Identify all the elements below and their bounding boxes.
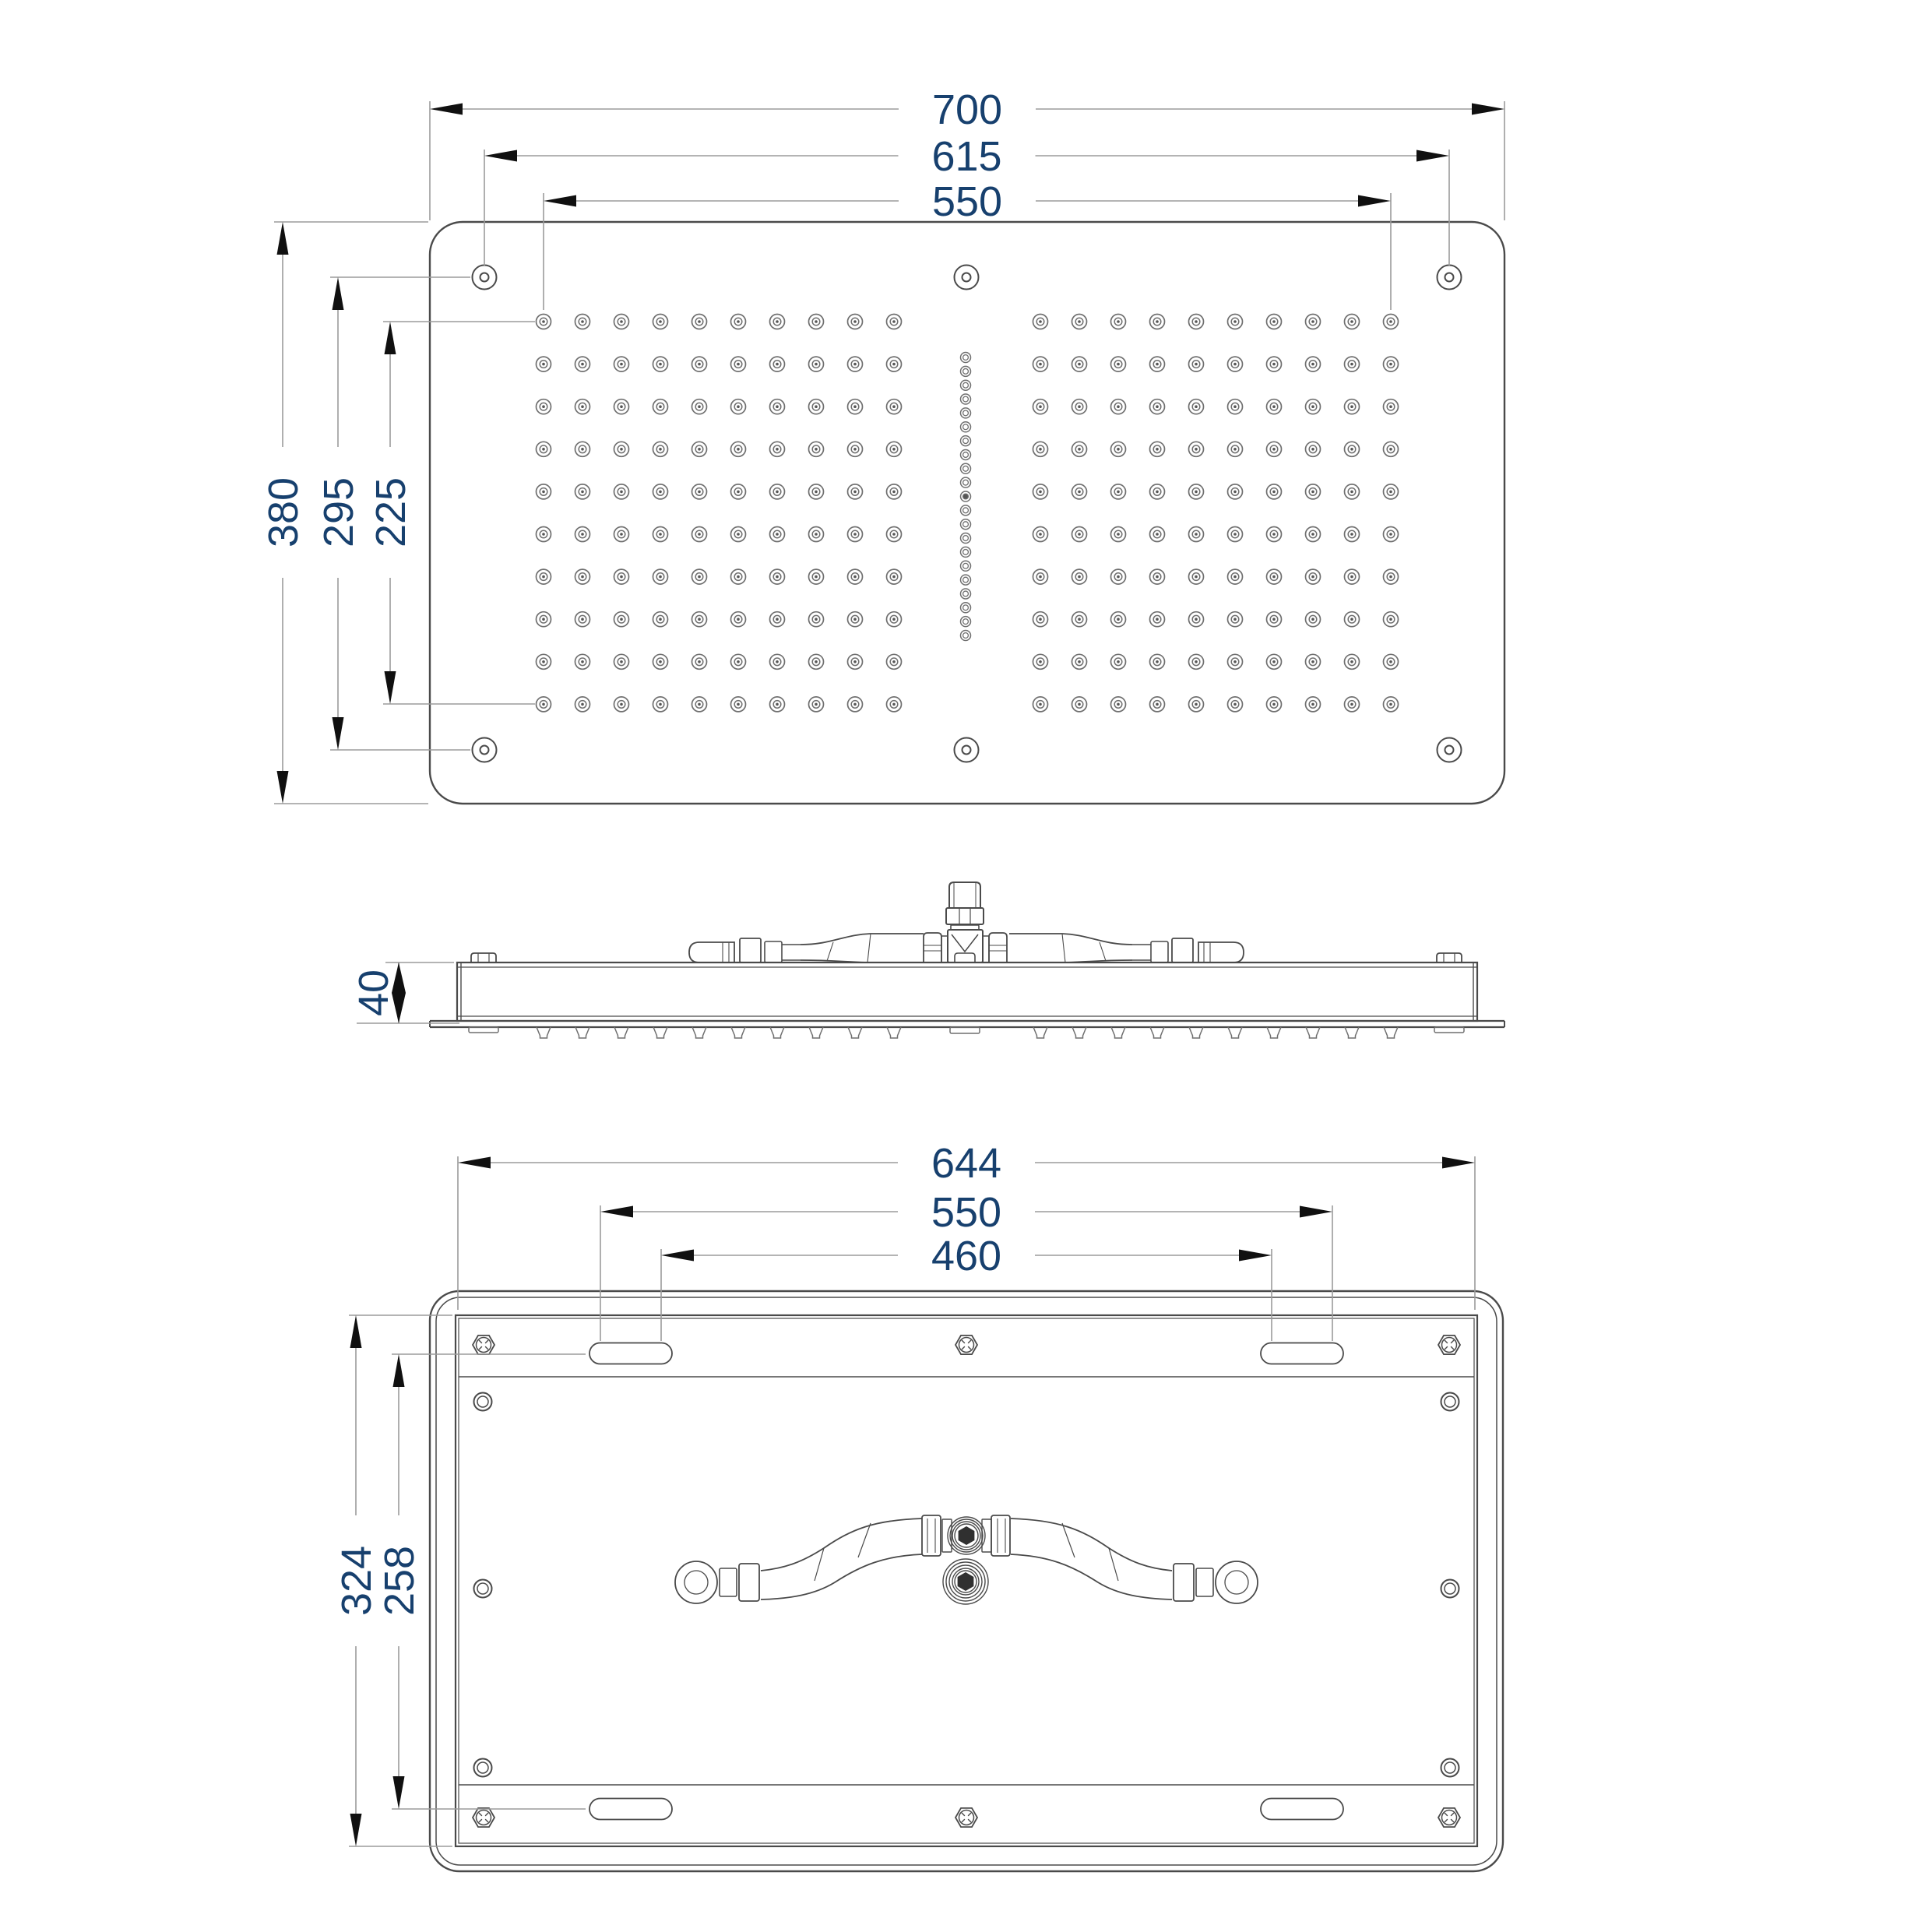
nozzle-dot xyxy=(698,363,701,366)
screw-recess xyxy=(485,1819,488,1822)
hose-nut xyxy=(739,1564,759,1601)
nozzle-jet xyxy=(653,484,668,499)
nozzle-jet xyxy=(1228,654,1243,669)
nozzle-tick xyxy=(1384,1027,1398,1038)
nozzle-dot xyxy=(1350,703,1353,706)
center-mist-nozzle xyxy=(961,617,971,627)
nozzle-jet xyxy=(692,697,707,712)
nozzle-jet xyxy=(1033,484,1048,499)
nozzle-dot xyxy=(659,618,662,621)
path xyxy=(1437,953,1462,962)
circle xyxy=(963,577,969,582)
nozzle-dot xyxy=(581,660,584,663)
nozzle-dot xyxy=(1389,320,1392,323)
nozzle-dot xyxy=(1078,575,1081,579)
nozzle-dot xyxy=(1117,491,1120,494)
mounting-bolt xyxy=(471,953,496,962)
nozzle-dot xyxy=(892,575,896,579)
nozzle-dot xyxy=(1117,703,1120,706)
nozzle-dot xyxy=(1311,491,1314,494)
nozzle-dot xyxy=(581,533,584,536)
screw-recess xyxy=(1451,1340,1454,1343)
nozzle-jet xyxy=(1189,357,1204,371)
nozzle-dot xyxy=(1272,448,1276,451)
nozzle-dot xyxy=(815,575,818,579)
nozzle-dot xyxy=(1389,660,1392,663)
circle xyxy=(963,466,969,471)
nozzle-dot xyxy=(1311,660,1314,663)
nozzle-jet xyxy=(731,697,746,712)
nozzle-dot xyxy=(892,533,896,536)
nozzle-jet xyxy=(887,399,902,414)
screw-recess xyxy=(968,1819,971,1822)
nozzle-dot xyxy=(1039,320,1042,323)
nozzle-jet xyxy=(575,484,590,499)
nozzle-tick xyxy=(1306,1027,1320,1038)
nozzle-jet xyxy=(1306,612,1321,627)
nozzle-jet xyxy=(1111,399,1126,414)
nozzle-jet xyxy=(1189,442,1204,456)
nozzle-jet xyxy=(1150,697,1165,712)
nozzle-jet xyxy=(1150,357,1165,371)
nozzle-jet xyxy=(770,357,785,371)
nozzle-jet xyxy=(1189,569,1204,584)
mounting-hole xyxy=(955,266,979,290)
nozzle-jet xyxy=(1150,484,1165,499)
nozzle-dot xyxy=(542,363,545,366)
nozzle-dot xyxy=(1350,320,1353,323)
nozzle-dot xyxy=(815,405,818,408)
nozzle-dot xyxy=(815,660,818,663)
nozzle-jet xyxy=(653,612,668,627)
nozzle-dot xyxy=(620,533,623,536)
mounting-hole-outer xyxy=(955,266,979,290)
nozzle-dot xyxy=(853,703,857,706)
screw-recess xyxy=(1451,1346,1454,1350)
nozzle-jet xyxy=(1150,315,1165,329)
hose-end-cap-inner xyxy=(684,1571,708,1594)
nozzle-jet xyxy=(731,527,746,542)
round-hole xyxy=(474,1393,492,1411)
housing-box xyxy=(457,962,1477,1021)
nozzle-dot xyxy=(776,660,779,663)
nozzle-jet xyxy=(809,569,824,584)
nozzle-dot xyxy=(1272,405,1276,408)
circle xyxy=(961,603,971,613)
circle xyxy=(963,508,969,513)
nozzle-jet xyxy=(537,697,551,712)
circle xyxy=(477,1762,488,1773)
hose-nut xyxy=(1174,1564,1194,1601)
nozzle-jet xyxy=(692,484,707,499)
nozzle-jet xyxy=(614,442,629,456)
circle xyxy=(961,561,971,571)
hose-bottom xyxy=(1011,1554,1172,1599)
dimension-arrow xyxy=(1442,1157,1475,1169)
nozzle-dot xyxy=(1350,405,1353,408)
nozzle-jet xyxy=(887,527,902,542)
circle xyxy=(961,436,971,446)
nozzle-dot xyxy=(1311,703,1314,706)
nozzle-jet xyxy=(731,399,746,414)
nozzle-tick xyxy=(653,1027,667,1038)
center-mist-nozzle xyxy=(961,380,971,390)
nozzle-dot xyxy=(659,575,662,579)
nozzle-jet xyxy=(848,612,863,627)
circle xyxy=(963,355,969,361)
path xyxy=(952,934,978,952)
nozzle-dot xyxy=(1272,575,1276,579)
nozzle-dot xyxy=(853,320,857,323)
nozzle-dot xyxy=(620,405,623,408)
nozzle-jet xyxy=(1345,442,1360,456)
nozzle-jet xyxy=(1189,654,1204,669)
dimension-arrow xyxy=(661,1250,694,1262)
mounting-hole xyxy=(473,266,497,290)
nozzle-dot xyxy=(542,491,545,494)
nozzle-dot xyxy=(853,618,857,621)
dimension-arrow xyxy=(393,1354,405,1387)
nozzle-dot xyxy=(1195,363,1198,366)
circle xyxy=(1441,1580,1459,1598)
nozzle-dot xyxy=(1078,320,1081,323)
screw-recess xyxy=(1445,1340,1448,1343)
dimension-label: 324 xyxy=(333,1546,380,1616)
nozzle-jet xyxy=(887,484,902,499)
nozzle-dot xyxy=(815,618,818,621)
nozzle-dot xyxy=(542,660,545,663)
nozzle-jet xyxy=(1072,315,1087,329)
nozzle-jet xyxy=(1267,357,1282,371)
side-hose xyxy=(1009,934,1244,962)
nozzle-dot xyxy=(1156,533,1159,536)
nozzle-jet xyxy=(887,697,902,712)
nozzle-jet xyxy=(1111,527,1126,542)
nozzle-dot xyxy=(659,448,662,451)
nozzle-jet xyxy=(537,654,551,669)
nozzle-jet xyxy=(1150,399,1165,414)
center-mist-nozzle xyxy=(961,603,971,613)
screw-recess xyxy=(485,1340,488,1343)
nozzle-dot xyxy=(1117,363,1120,366)
dimension-label: 550 xyxy=(931,1189,1001,1236)
circle xyxy=(961,463,971,473)
nozzle-tick xyxy=(731,1027,745,1038)
path xyxy=(924,933,941,962)
hose-nut xyxy=(1172,938,1193,962)
nozzle-jet xyxy=(809,612,824,627)
nozzle-jet xyxy=(1306,357,1321,371)
nozzle-jet xyxy=(1111,697,1126,712)
nozzle-jet xyxy=(1384,484,1399,499)
nozzle-dot xyxy=(1078,448,1081,451)
nozzle-dot xyxy=(853,363,857,366)
dimension-arrow xyxy=(1300,1206,1332,1218)
dimension-label: 295 xyxy=(315,477,362,547)
nozzle-dot xyxy=(1350,618,1353,621)
nozzle-jet xyxy=(1033,612,1048,627)
nozzle-jet xyxy=(1306,697,1321,712)
nozzle-tick xyxy=(1267,1027,1281,1038)
nozzle-jet xyxy=(848,315,863,329)
nozzle-dot xyxy=(892,703,896,706)
nozzle-dot xyxy=(1311,575,1314,579)
dimension-label: 225 xyxy=(368,477,414,547)
nozzle-tick xyxy=(1228,1027,1242,1038)
dimension-label: 460 xyxy=(931,1233,1001,1279)
nozzle-dot xyxy=(1233,533,1237,536)
nozzle-jet xyxy=(1228,527,1243,542)
dimension-arrow xyxy=(385,671,396,704)
mounting-slot xyxy=(1261,1799,1343,1820)
rear-hose xyxy=(675,1519,922,1603)
nozzle-jet xyxy=(848,527,863,542)
circle xyxy=(963,536,969,541)
nozzle-jet xyxy=(770,399,785,414)
nozzle-dot xyxy=(1233,363,1237,366)
nozzle-jet xyxy=(1072,399,1087,414)
nozzle-jet xyxy=(1072,569,1087,584)
nozzle-jet xyxy=(1072,654,1087,669)
hose-nut xyxy=(765,941,782,962)
nozzle-dot xyxy=(1156,363,1159,366)
circle xyxy=(1445,1396,1455,1407)
nozzle-jet xyxy=(1267,527,1282,542)
nozzle-jet xyxy=(653,357,668,371)
nozzle-tick xyxy=(809,1027,823,1038)
nozzle-dot xyxy=(737,363,740,366)
nozzle-jet xyxy=(1267,569,1282,584)
nozzle-jet xyxy=(1111,484,1126,499)
dimension-arrow xyxy=(333,277,344,310)
side-hose xyxy=(689,934,924,962)
circle xyxy=(477,1338,491,1353)
nozzle-jet xyxy=(614,697,629,712)
nozzle-jet xyxy=(809,484,824,499)
nozzle-dot xyxy=(1233,448,1237,451)
nozzle-dot xyxy=(776,448,779,451)
nozzle-dot xyxy=(1389,618,1392,621)
nozzle-jet xyxy=(692,569,707,584)
nozzle-jet xyxy=(887,612,902,627)
nozzle-dot xyxy=(776,533,779,536)
nozzle-jet xyxy=(1072,612,1087,627)
nozzle-jet xyxy=(1228,569,1243,584)
nozzle-dot xyxy=(1233,660,1237,663)
nozzle-tick xyxy=(1189,1027,1203,1038)
nozzle-dot xyxy=(1039,363,1042,366)
hose-top xyxy=(801,934,924,945)
nozzle-jet xyxy=(1384,569,1399,584)
nozzle-jet xyxy=(731,654,746,669)
screw-recess xyxy=(485,1346,488,1350)
dimension-arrow xyxy=(277,771,289,804)
center-mist-nozzle xyxy=(961,505,971,516)
nozzle-jet xyxy=(1111,442,1126,456)
nozzle-jet xyxy=(1306,484,1321,499)
nozzle-jet xyxy=(653,569,668,584)
hex-screw xyxy=(1438,1808,1460,1827)
nozzle-dot xyxy=(542,618,545,621)
nozzle-dot xyxy=(620,660,623,663)
nozzle-dot xyxy=(1039,533,1042,536)
nozzle-jet xyxy=(1384,527,1399,542)
nozzle-dot xyxy=(1195,533,1198,536)
center-mist-nozzle xyxy=(961,477,971,487)
nozzle-dot xyxy=(581,448,584,451)
nozzle-jet xyxy=(1111,654,1126,669)
nozzle-dot xyxy=(1117,618,1120,621)
nozzle-jet xyxy=(848,357,863,371)
nozzle-dot xyxy=(1311,618,1314,621)
nozzle-jet xyxy=(537,357,551,371)
nozzle-jet xyxy=(770,315,785,329)
nozzle-dot xyxy=(1272,618,1276,621)
dimension-arrow xyxy=(1472,104,1504,115)
center-mist-nozzle xyxy=(961,547,971,557)
nozzle-jet xyxy=(1345,654,1360,669)
screw-recess xyxy=(485,1813,488,1816)
mounting-hole xyxy=(1438,738,1462,762)
round-hole xyxy=(474,1759,492,1777)
nozzle-dot xyxy=(815,320,818,323)
nozzle-dot xyxy=(1233,703,1237,706)
nozzle-dot xyxy=(659,660,662,663)
nozzle-dot xyxy=(698,448,701,451)
round-hole xyxy=(474,1580,492,1598)
nozzle-jet xyxy=(692,315,707,329)
nozzle-dot xyxy=(1156,575,1159,579)
nozzle-dot xyxy=(892,405,896,408)
dimension-arrow xyxy=(1239,1250,1272,1262)
circle xyxy=(963,563,969,568)
nozzle-dot xyxy=(1389,703,1392,706)
nozzle-jet xyxy=(1345,569,1360,584)
nozzle-jet xyxy=(1072,484,1087,499)
nozzle-jet xyxy=(692,399,707,414)
nozzle-dot xyxy=(1039,660,1042,663)
mounting-hole-outer xyxy=(1438,266,1462,290)
center-mist-nozzle xyxy=(961,449,971,459)
nozzle-dot xyxy=(581,320,584,323)
mounting-slot xyxy=(589,1799,672,1820)
hose-end-cap xyxy=(1216,1561,1258,1603)
circle xyxy=(1445,1583,1455,1594)
nozzle-dot xyxy=(737,320,740,323)
nozzle-jet xyxy=(1384,357,1399,371)
center-mist-nozzle xyxy=(961,589,971,599)
nozzle-jet xyxy=(1111,357,1126,371)
nozzle-dot xyxy=(1078,405,1081,408)
nozzle-dot xyxy=(737,618,740,621)
drawing-sheet: 70061555038029522540644550460324258 xyxy=(0,0,1932,1932)
dimension-arrow xyxy=(1358,195,1391,207)
nozzle-dot xyxy=(1078,491,1081,494)
nozzle-dot xyxy=(581,703,584,706)
nozzle-dot xyxy=(892,660,896,663)
circle xyxy=(961,353,971,363)
nozzle-jet xyxy=(575,442,590,456)
nozzle-dot xyxy=(776,703,779,706)
dimension-arrow xyxy=(544,195,576,207)
nozzle-dot xyxy=(1350,363,1353,366)
nozzle-jet xyxy=(887,654,902,669)
nozzle-jet xyxy=(1111,569,1126,584)
nozzle-dot xyxy=(1078,660,1081,663)
circle xyxy=(477,1811,491,1825)
screw-recess xyxy=(1445,1346,1448,1350)
nozzle-jet xyxy=(1111,612,1126,627)
dimension-arrow xyxy=(458,1157,491,1169)
nozzle-dot xyxy=(581,575,584,579)
nozzle-dot xyxy=(581,491,584,494)
nozzle-dot xyxy=(892,320,896,323)
nozzle-jet xyxy=(653,442,668,456)
nozzle-tick xyxy=(1111,1027,1125,1038)
nozzle-jet xyxy=(1189,399,1204,414)
nozzle-jet xyxy=(1072,357,1087,371)
nozzle-dot xyxy=(620,491,623,494)
nozzle-dot xyxy=(1272,491,1276,494)
center-mist-nozzle xyxy=(961,463,971,473)
circle xyxy=(963,550,969,555)
nozzle-jet xyxy=(1267,315,1282,329)
nozzle-tick xyxy=(1033,1027,1047,1038)
hose-nut xyxy=(1196,1568,1213,1596)
nozzle-dot xyxy=(1156,660,1159,663)
nozzle-dot xyxy=(659,320,662,323)
nozzle-dot xyxy=(698,491,701,494)
dimension-label: 380 xyxy=(260,477,307,547)
nozzle-jet xyxy=(1150,442,1165,456)
nozzle-jet xyxy=(537,399,551,414)
nozzle-jet xyxy=(1189,484,1204,499)
nozzle-jet xyxy=(1189,697,1204,712)
nozzle-dot xyxy=(815,533,818,536)
screw-recess xyxy=(479,1340,482,1343)
round-hole xyxy=(1441,1580,1459,1598)
nozzle-dot xyxy=(853,405,857,408)
nozzle-jet xyxy=(1384,315,1399,329)
union-nut xyxy=(924,933,941,962)
outline-rect xyxy=(982,1519,991,1552)
nozzle-jet xyxy=(653,399,668,414)
nozzle-dot xyxy=(776,363,779,366)
dimension-arrow xyxy=(277,222,289,255)
rear-hose xyxy=(1011,1519,1258,1603)
hose-end-cap xyxy=(675,1561,717,1603)
nozzle-dot xyxy=(1233,618,1237,621)
nozzle-dot xyxy=(1117,448,1120,451)
nozzle-dot xyxy=(542,533,545,536)
nozzle-jet xyxy=(614,315,629,329)
nozzle-dot xyxy=(853,448,857,451)
nozzle-jet xyxy=(809,654,824,669)
nozzle-jet xyxy=(1228,315,1243,329)
dimension-arrow xyxy=(350,1315,362,1348)
circle xyxy=(963,522,969,527)
nozzle-jet xyxy=(731,484,746,499)
nozzle-dot xyxy=(1156,703,1159,706)
mounting-hole-outer xyxy=(473,738,497,762)
nozzle-jet xyxy=(537,484,551,499)
nozzle-dot xyxy=(892,363,896,366)
nozzle-jet xyxy=(1306,399,1321,414)
nozzle-dot xyxy=(620,703,623,706)
nozzle-dot xyxy=(815,448,818,451)
hose-top xyxy=(1011,1519,1172,1571)
nozzle-dot xyxy=(1195,660,1198,663)
